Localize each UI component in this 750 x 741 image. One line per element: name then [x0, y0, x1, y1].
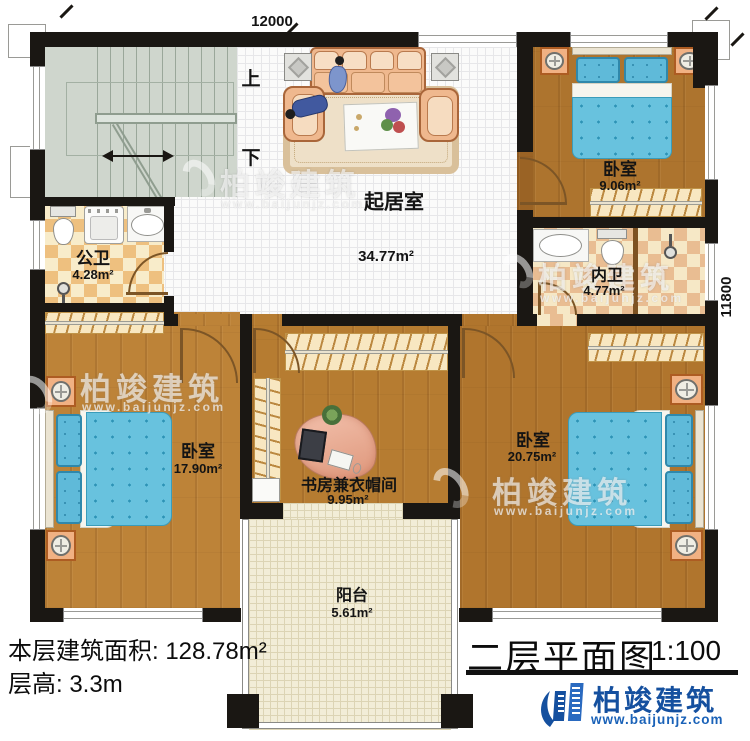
window-top-bedroom [570, 32, 668, 47]
balcony-post-right [441, 694, 473, 728]
wall-mid-2 [240, 314, 252, 326]
window-left-stairwell [30, 66, 45, 150]
plan-scale: 1:100 [651, 635, 721, 667]
room-label-public-bath: 公卫 [76, 250, 110, 268]
room-area-public-bath: 4.28m² [72, 268, 113, 282]
person-body [328, 65, 348, 93]
closet-rod [588, 346, 704, 350]
sofa-cushion [370, 51, 395, 70]
floor-plan: 12000 11800 上 下 起居室 34.77m² 卧室 9.06m² 公卫… [0, 0, 750, 741]
flower-leaf-icon [381, 119, 393, 131]
watermark-site: www.baijunjz.com [494, 504, 638, 518]
bed-duvet [572, 97, 672, 159]
table-dot [354, 126, 359, 131]
dim-tick [704, 6, 718, 20]
toilet-tank [597, 229, 627, 239]
table-dot [356, 114, 362, 120]
door-leaf [520, 202, 567, 205]
room-area-balcony: 5.61m² [331, 606, 372, 620]
wall-public-bath-bottom [45, 303, 164, 312]
wall-public-bath-right-a [164, 197, 174, 252]
bed-pillow [665, 471, 693, 524]
window-left-public-bath [30, 220, 45, 270]
end-table [284, 53, 312, 81]
bed-pillow [576, 57, 620, 83]
sofa-seat [388, 72, 422, 93]
lamp-icon [51, 381, 71, 402]
nightstand [670, 530, 703, 561]
sink-basin [539, 234, 582, 257]
stair-arrow-left-icon [102, 150, 113, 162]
wall-study-left [240, 326, 252, 519]
room-label-bedroom-tr: 卧室 [603, 161, 637, 179]
washing-machine-dials [88, 209, 120, 213]
left-wall-pilaster [10, 146, 32, 198]
bed-headboard [45, 410, 54, 528]
armchair-cushion [427, 96, 453, 136]
wall-living-east-a [517, 32, 533, 152]
floor-drain-icon [57, 282, 70, 295]
monitor-icon [298, 428, 327, 462]
closet-rod [45, 321, 164, 325]
person-head [335, 56, 345, 66]
door-leaf [126, 292, 168, 295]
floor-balcony [249, 519, 451, 730]
window-bottom-bedroom-bl [63, 608, 203, 622]
bed-headboard [695, 410, 704, 528]
sofa-cushion [397, 51, 422, 70]
bed-pillow [624, 57, 668, 83]
toilet-tank [50, 206, 76, 217]
room-area-bedroom-tr: 9.06m² [599, 179, 640, 193]
balcony-railing-bottom [242, 722, 458, 729]
title-underline [466, 670, 738, 675]
wall-public-bath-right-b [164, 296, 174, 314]
stair-direction-line [112, 155, 164, 157]
window-right-bedroom-br [705, 405, 718, 530]
floor-drain-stem [669, 234, 672, 246]
wall-balcony-top-left [240, 503, 283, 519]
floor-area-text: 本层建筑面积: 128.78m² [8, 631, 267, 666]
watermark-site: www.baijunjz.com [221, 197, 365, 211]
room-label-bedroom-bl: 卧室 [181, 443, 215, 461]
bed-headboard [572, 47, 672, 55]
sink-faucet-icon [144, 208, 151, 213]
wall-corner-top-right [693, 32, 718, 88]
balcony-post-left [227, 694, 259, 728]
end-table [431, 53, 459, 81]
end-table-decor [288, 57, 309, 78]
floor-doorway-bedroom-right [462, 314, 517, 326]
brand-website: www.baijunjz.com [591, 712, 724, 727]
lamp-icon [675, 535, 698, 556]
sink-basin [131, 214, 164, 236]
stair-arrow-right-icon [163, 150, 174, 162]
wall-mid-3 [282, 314, 462, 326]
washing-machine-drum [90, 216, 118, 240]
dimension-top: 12000 [251, 14, 293, 30]
bed-duvet [86, 412, 172, 526]
lamp-icon [675, 379, 698, 400]
wall-mid-5 [577, 314, 705, 326]
floor-doorway-study [252, 314, 282, 326]
wall-bedroom-tr-bottom [533, 217, 705, 228]
room-area-bedroom-br: 20.75m² [508, 450, 556, 464]
wall-stair-bottom [45, 197, 175, 206]
room-label-balcony: 阳台 [336, 589, 368, 606]
room-label-living: 起居室 [364, 193, 424, 214]
bed-pillow [56, 414, 82, 467]
lamp-icon [545, 52, 564, 70]
brand-logo-icon [536, 677, 590, 733]
nightstand [670, 374, 703, 405]
room-area-living: 34.77m² [358, 249, 414, 265]
bed-pillow [665, 414, 693, 467]
dim-tick [59, 4, 73, 18]
door-leaf [462, 328, 465, 378]
room-label-bedroom-br: 卧室 [516, 432, 550, 450]
dimension-right: 11800 [719, 277, 735, 318]
stair-up-label: 上 [241, 70, 260, 90]
wall-mid-1 [164, 314, 178, 326]
nightstand [540, 47, 569, 75]
window-right-private-bath [705, 243, 718, 301]
watermark-site: www.baijunjz.com [82, 400, 226, 414]
lamp-icon [51, 535, 71, 556]
nightstand [46, 530, 76, 561]
floor-doorway-bedroom-left [178, 314, 240, 326]
stair-down-label: 下 [241, 149, 260, 169]
closet-rod [590, 201, 702, 205]
person-sitting [328, 55, 349, 96]
room-area-bedroom-bl: 17.90m² [174, 462, 222, 476]
armchair [419, 88, 459, 142]
flower-bouquet-icon [393, 121, 405, 133]
window-bottom-bedroom-br [492, 608, 662, 622]
sofa-seat [351, 72, 385, 93]
door-leaf [253, 328, 256, 373]
window-top-living [418, 32, 517, 47]
dresser [252, 478, 280, 502]
bed-pillow [56, 471, 82, 524]
room-area-private-bath: 4.77m² [583, 284, 624, 298]
window-left-bedroom-bl [30, 408, 45, 530]
closet-rod [285, 350, 448, 354]
plant-icon [322, 405, 342, 425]
window-right-bedroom-tr [705, 85, 718, 180]
wall-mid-4 [517, 314, 537, 326]
end-table-decor [435, 57, 456, 78]
dim-tick [730, 32, 744, 46]
floor-doorway-private-bath [537, 314, 577, 326]
room-area-study: 9.95m² [327, 493, 368, 507]
floor-height-text: 层高: 3.3m [8, 664, 123, 699]
